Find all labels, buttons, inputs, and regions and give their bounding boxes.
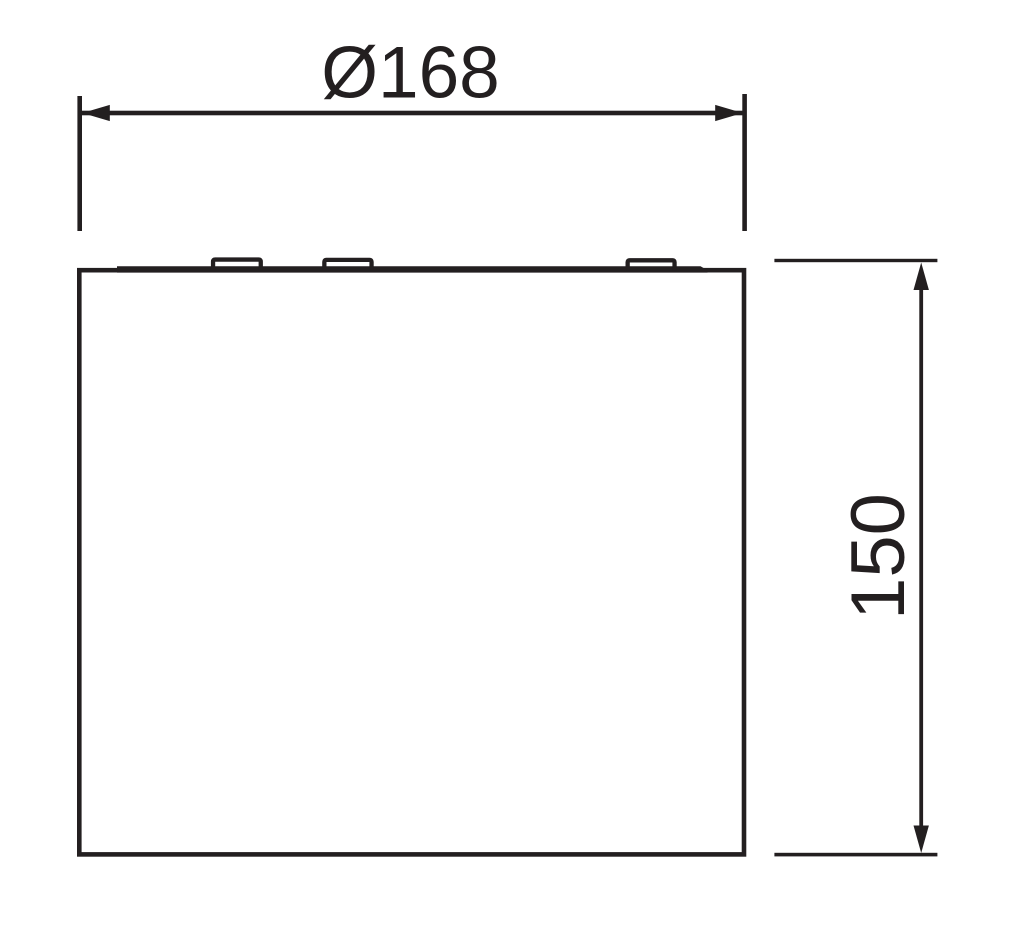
svg-text:Ø168: Ø168: [321, 33, 500, 114]
svg-text:150: 150: [836, 493, 921, 620]
